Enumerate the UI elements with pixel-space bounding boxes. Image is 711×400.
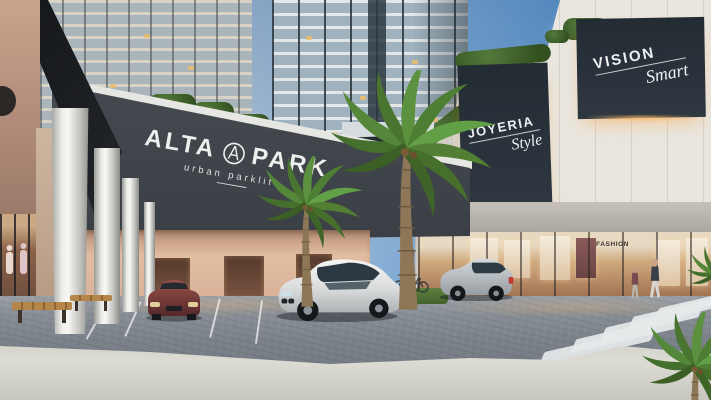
- bench-leg: [62, 310, 66, 323]
- lit-window: [306, 36, 312, 40]
- bench-leg: [104, 301, 107, 311]
- pedestrian: [626, 266, 644, 302]
- bench: [12, 302, 72, 310]
- canopy-column: [122, 178, 139, 312]
- lit-window: [144, 34, 150, 38]
- palm-tree-corner: [598, 312, 711, 400]
- rooftop-hedge: [545, 30, 569, 43]
- mall-column: [553, 222, 563, 306]
- tenant-sign-vision: VISION Smart: [576, 17, 706, 119]
- lit-window: [110, 84, 116, 88]
- palm-tree-large: [298, 70, 508, 312]
- lit-window: [188, 66, 194, 70]
- bench-leg: [75, 301, 78, 311]
- architectural-render-scene: JOYERIA Style VISION Smart FASHION ALTA: [0, 0, 711, 400]
- vision-sign-text: VISION Smart: [592, 39, 690, 98]
- lit-window: [412, 60, 418, 64]
- bench-leg: [18, 310, 22, 323]
- maroon-sedan: [142, 276, 206, 322]
- pedestrian: [644, 258, 666, 302]
- sign-glow: [586, 116, 696, 122]
